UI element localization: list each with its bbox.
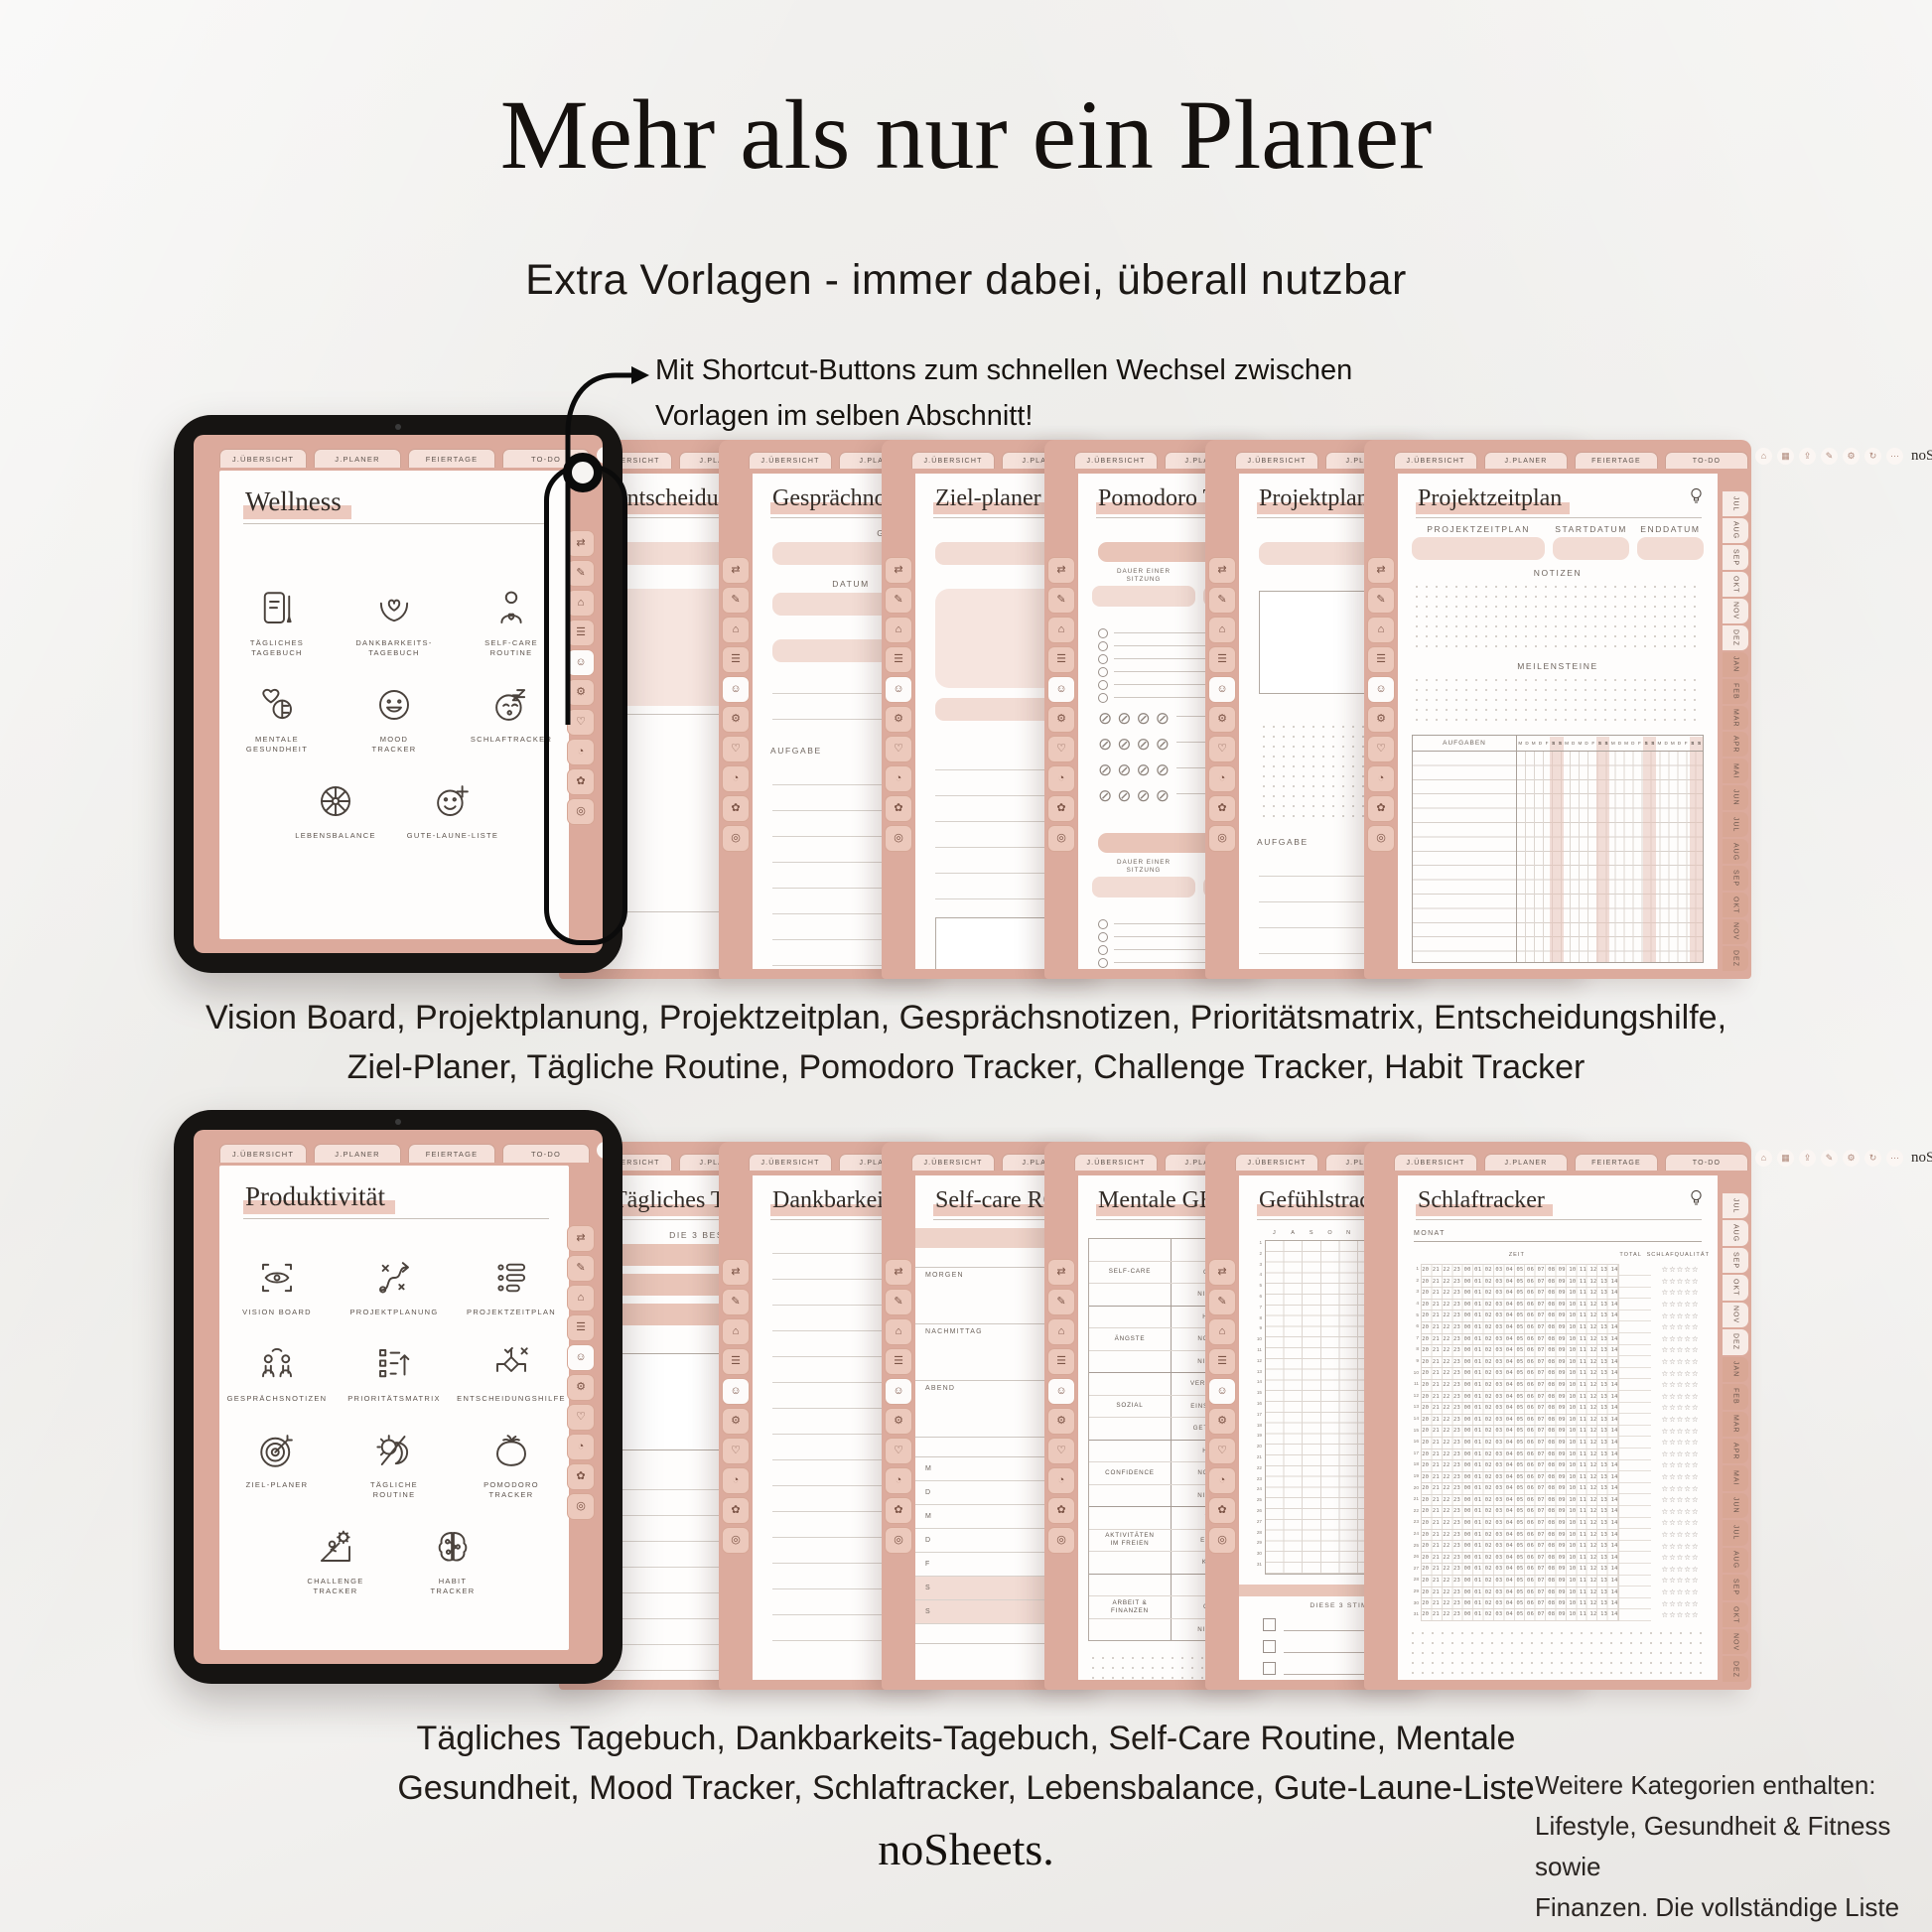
sleep-row[interactable]: 2820 21 22 23 00 01 02 03 04 05 06 07 08…	[1406, 1575, 1710, 1587]
globe-icon[interactable]: ◎	[885, 825, 912, 852]
category-item[interactable]: LEBENSBALANCE	[277, 780, 394, 841]
sleep-row[interactable]: 1520 21 22 23 00 01 02 03 04 05 06 07 08…	[1406, 1425, 1710, 1437]
heart-icon[interactable]: ♡	[722, 736, 750, 762]
category-item[interactable]: MENTALE GESUNDHEIT	[219, 684, 336, 755]
sleep-hour-cells[interactable]: 20 21 22 23 00 01 02 03 04 05 06 07 08 0…	[1421, 1310, 1619, 1321]
month-tab-mar-8[interactable]: MAR	[1723, 706, 1748, 731]
category-item[interactable]: TÄGLICHE ROUTINE	[336, 1430, 453, 1500]
gear-icon[interactable]: ⚙	[1367, 706, 1395, 733]
notes-icon[interactable]: ✎	[885, 587, 912, 614]
month-tab-dez-5[interactable]: DEZ	[1723, 625, 1748, 650]
month-tab-apr-9[interactable]: APR	[1723, 1439, 1748, 1463]
category-item[interactable]: GESPRÄCHSNOTIZEN	[219, 1343, 336, 1404]
checkbox[interactable]	[1263, 1662, 1276, 1675]
tab-feiertage[interactable]: FEIERTAGE	[1575, 452, 1658, 469]
sleep-hour-cells[interactable]: 20 21 22 23 00 01 02 03 04 05 06 07 08 0…	[1421, 1529, 1619, 1541]
sleep-quality-stars[interactable]: ☆☆☆☆☆	[1651, 1459, 1710, 1470]
notes-dots[interactable]	[1412, 582, 1704, 653]
notes-icon[interactable]: ✎	[885, 1289, 912, 1315]
sleep-quality-stars[interactable]: ☆☆☆☆☆	[1651, 1356, 1710, 1367]
leaf-icon[interactable]: ✿	[885, 795, 912, 822]
clock-icon[interactable]: ◔	[1208, 765, 1236, 792]
shuffle-icon[interactable]: ⇄	[1047, 557, 1075, 584]
month-tab-nov-16[interactable]: NOV	[1723, 1629, 1748, 1654]
sleep-quality-stars[interactable]: ☆☆☆☆☆	[1651, 1333, 1710, 1344]
leaf-icon[interactable]: ✿	[1208, 1497, 1236, 1524]
month-tab-jan-6[interactable]: JAN	[1723, 652, 1748, 677]
month-tab-mai-10[interactable]: MAI	[1723, 1465, 1748, 1490]
month-tab-aug-1[interactable]: AUG	[1723, 1220, 1748, 1245]
tab-feiertage[interactable]: FEIERTAGE	[408, 1144, 495, 1163]
gear-icon[interactable]: ⚙	[1047, 1408, 1075, 1435]
sleep-hour-cells[interactable]: 20 21 22 23 00 01 02 03 04 05 06 07 08 0…	[1421, 1425, 1619, 1437]
sleep-quality-stars[interactable]: ☆☆☆☆☆	[1651, 1311, 1710, 1321]
sleep-row[interactable]: 1220 21 22 23 00 01 02 03 04 05 06 07 08…	[1406, 1391, 1710, 1403]
heart-icon[interactable]: ♡	[1047, 1438, 1075, 1464]
leaf-icon[interactable]: ✿	[885, 1497, 912, 1524]
sleep-quality-stars[interactable]: ☆☆☆☆☆	[1651, 1494, 1710, 1505]
sleep-hour-cells[interactable]: 20 21 22 23 00 01 02 03 04 05 06 07 08 0…	[1421, 1391, 1619, 1403]
globe-icon[interactable]: ◎	[885, 1527, 912, 1554]
sleep-quality-stars[interactable]: ☆☆☆☆☆	[1651, 1587, 1710, 1597]
globe-icon[interactable]: ◎	[722, 825, 750, 852]
shuffle-icon[interactable]: ⇄	[1047, 1259, 1075, 1286]
input-field[interactable]	[1092, 586, 1195, 607]
sleep-hour-cells[interactable]: 20 21 22 23 00 01 02 03 04 05 06 07 08 0…	[1421, 1344, 1619, 1356]
clock-icon[interactable]: ◔	[722, 1467, 750, 1494]
category-item[interactable]: VISION BOARD	[219, 1257, 336, 1317]
sleep-quality-stars[interactable]: ☆☆☆☆☆	[1651, 1391, 1710, 1402]
sleep-quality-stars[interactable]: ☆☆☆☆☆	[1651, 1564, 1710, 1575]
month-tab-nov-4[interactable]: NOV	[1723, 1303, 1748, 1327]
category-item[interactable]: PROJEKTZEITPLAN	[453, 1257, 569, 1317]
sleep-quality-stars[interactable]: ☆☆☆☆☆	[1651, 1437, 1710, 1448]
tab-j-bersicht[interactable]: J.ÜBERSICHT	[1394, 1154, 1477, 1171]
sleep-row[interactable]: 1120 21 22 23 00 01 02 03 04 05 06 07 08…	[1406, 1379, 1710, 1391]
globe-icon[interactable]: ◎	[1367, 825, 1395, 852]
tab-j-bersicht[interactable]: J.ÜBERSICHT	[1235, 452, 1318, 469]
mood-icon[interactable]: ☺	[1047, 676, 1075, 703]
sleep-row[interactable]: 520 21 22 23 00 01 02 03 04 05 06 07 08 …	[1406, 1310, 1710, 1321]
sleep-hour-cells[interactable]: 20 21 22 23 00 01 02 03 04 05 06 07 08 0…	[1421, 1552, 1619, 1564]
mood-icon[interactable]: ☺	[1208, 676, 1236, 703]
sleep-quality-stars[interactable]: ☆☆☆☆☆	[1651, 1276, 1710, 1287]
tab-to-do[interactable]: TO-DO	[1665, 452, 1748, 469]
home-icon[interactable]: ⌂	[567, 1285, 595, 1311]
tab-j-bersicht[interactable]: J.ÜBERSICHT	[219, 449, 307, 468]
sleep-quality-stars[interactable]: ☆☆☆☆☆	[1651, 1321, 1710, 1332]
sleep-hour-cells[interactable]: 20 21 22 23 00 01 02 03 04 05 06 07 08 0…	[1421, 1333, 1619, 1345]
gear-icon[interactable]: ⚙	[1208, 1408, 1236, 1435]
sleep-quality-stars[interactable]: ☆☆☆☆☆	[1651, 1517, 1710, 1528]
clock-icon[interactable]: ◔	[567, 1434, 595, 1460]
clock-icon[interactable]: ◔	[885, 1467, 912, 1494]
home-icon[interactable]: ⌂	[722, 1318, 750, 1345]
sleep-row[interactable]: 2020 21 22 23 00 01 02 03 04 05 06 07 08…	[1406, 1482, 1710, 1494]
list-icon[interactable]: ☰	[1208, 646, 1236, 673]
sleep-quality-stars[interactable]: ☆☆☆☆☆	[1651, 1379, 1710, 1390]
category-item[interactable]: HABIT TRACKER	[394, 1526, 511, 1596]
checkbox[interactable]	[1263, 1640, 1276, 1653]
home-icon[interactable]: ⌂	[885, 617, 912, 643]
gear-icon[interactable]: ⚙	[722, 1408, 750, 1435]
gear-icon[interactable]: ⚙	[722, 706, 750, 733]
notes-icon[interactable]: ✎	[1367, 587, 1395, 614]
gear-icon[interactable]: ⚙	[1208, 706, 1236, 733]
month-tab-sep-14[interactable]: SEP	[1723, 866, 1748, 891]
shuffle-icon[interactable]: ⇄	[567, 1225, 595, 1252]
pen-icon[interactable]: ✎	[1821, 1150, 1838, 1167]
sleep-row[interactable]: 120 21 22 23 00 01 02 03 04 05 06 07 08 …	[1406, 1264, 1710, 1276]
sleep-row[interactable]: 2320 21 22 23 00 01 02 03 04 05 06 07 08…	[1406, 1517, 1710, 1529]
month-tab-okt-15[interactable]: OKT	[1723, 893, 1748, 917]
tab-j-bersicht[interactable]: J.ÜBERSICHT	[1074, 452, 1158, 469]
clock-icon[interactable]: ◔	[722, 765, 750, 792]
month-tab-nov-16[interactable]: NOV	[1723, 919, 1748, 944]
sleep-quality-stars[interactable]: ☆☆☆☆☆	[1651, 1471, 1710, 1482]
sleep-hour-cells[interactable]: 20 21 22 23 00 01 02 03 04 05 06 07 08 0…	[1421, 1276, 1619, 1288]
sleep-hour-cells[interactable]: 20 21 22 23 00 01 02 03 04 05 06 07 08 0…	[1421, 1367, 1619, 1379]
sleep-row[interactable]: 2720 21 22 23 00 01 02 03 04 05 06 07 08…	[1406, 1563, 1710, 1575]
home-icon[interactable]: ⌂	[1208, 1318, 1236, 1345]
shuffle-icon[interactable]: ⇄	[1367, 557, 1395, 584]
gear-icon[interactable]: ⚙	[885, 706, 912, 733]
sleep-hour-cells[interactable]: 20 21 22 23 00 01 02 03 04 05 06 07 08 0…	[1421, 1356, 1619, 1368]
sleep-hour-cells[interactable]: 20 21 22 23 00 01 02 03 04 05 06 07 08 0…	[1421, 1575, 1619, 1587]
category-item[interactable]: PROJEKTPLANUNG	[336, 1257, 453, 1317]
sleep-row[interactable]: 320 21 22 23 00 01 02 03 04 05 06 07 08 …	[1406, 1287, 1710, 1299]
leaf-icon[interactable]: ✿	[722, 795, 750, 822]
month-tab-sep-2[interactable]: SEP	[1723, 545, 1748, 570]
month-tab-okt-15[interactable]: OKT	[1723, 1602, 1748, 1627]
input-field[interactable]	[1092, 877, 1195, 897]
month-tab-jul-12[interactable]: JUL	[1723, 1520, 1748, 1545]
clock-icon[interactable]: ◔	[1047, 1467, 1075, 1494]
category-item[interactable]: MOOD TRACKER	[336, 684, 453, 755]
leaf-icon[interactable]: ✿	[722, 1497, 750, 1524]
month-tab-dez-17[interactable]: DEZ	[1723, 1656, 1748, 1681]
sleep-hour-cells[interactable]: 20 21 22 23 00 01 02 03 04 05 06 07 08 0…	[1421, 1494, 1619, 1506]
sleep-row[interactable]: 2120 21 22 23 00 01 02 03 04 05 06 07 08…	[1406, 1494, 1710, 1506]
globe-icon[interactable]: ◎	[1208, 1527, 1236, 1554]
mood-icon[interactable]: ☺	[722, 1378, 750, 1405]
month-tab-feb-7[interactable]: FEB	[1723, 1384, 1748, 1409]
sleep-quality-stars[interactable]: ☆☆☆☆☆	[1651, 1552, 1710, 1563]
sleep-hour-cells[interactable]: 20 21 22 23 00 01 02 03 04 05 06 07 08 0…	[1421, 1414, 1619, 1426]
category-item[interactable]: DANKBARKEITS- TAGEBUCH	[336, 588, 453, 658]
month-tab-okt-3[interactable]: OKT	[1723, 1275, 1748, 1300]
heart-icon[interactable]: ♡	[1208, 1438, 1236, 1464]
share-icon[interactable]: ⇪	[1799, 1150, 1816, 1167]
grid-icon[interactable]: ▦	[1777, 448, 1794, 465]
sleep-quality-stars[interactable]: ☆☆☆☆☆	[1651, 1402, 1710, 1413]
month-tab-aug-13[interactable]: AUG	[1723, 1548, 1748, 1573]
month-tab-jan-6[interactable]: JAN	[1723, 1357, 1748, 1382]
month-tab-sep-2[interactable]: SEP	[1723, 1248, 1748, 1273]
tab-j-bersicht[interactable]: J.ÜBERSICHT	[1074, 1154, 1158, 1171]
globe-icon[interactable]: ◎	[567, 1493, 595, 1520]
share-icon[interactable]: ⇪	[1799, 448, 1816, 465]
leaf-icon[interactable]: ✿	[567, 1463, 595, 1490]
notes-icon[interactable]: ✎	[567, 1255, 595, 1282]
tab-j-bersicht[interactable]: J.ÜBERSICHT	[749, 452, 832, 469]
notes-icon[interactable]: ✎	[722, 1289, 750, 1315]
home-icon[interactable]: ⌂	[1367, 617, 1395, 643]
sleep-row[interactable]: 820 21 22 23 00 01 02 03 04 05 06 07 08 …	[1406, 1344, 1710, 1356]
sleep-row[interactable]: 2420 21 22 23 00 01 02 03 04 05 06 07 08…	[1406, 1529, 1710, 1541]
sleep-hour-cells[interactable]: 20 21 22 23 00 01 02 03 04 05 06 07 08 0…	[1421, 1402, 1619, 1414]
tab-j-planer[interactable]: J.PLANER	[314, 1144, 401, 1163]
sleep-quality-stars[interactable]: ☆☆☆☆☆	[1651, 1264, 1710, 1275]
home-icon[interactable]: ⌂	[885, 1318, 912, 1345]
sleep-hour-cells[interactable]: 20 21 22 23 00 01 02 03 04 05 06 07 08 0…	[1421, 1597, 1619, 1609]
home-icon[interactable]: ⌂	[597, 1142, 603, 1159]
list-icon[interactable]: ☰	[885, 646, 912, 673]
tab-to-do[interactable]: TO-DO	[502, 1144, 590, 1163]
heart-icon[interactable]: ♡	[885, 1438, 912, 1464]
mood-icon[interactable]: ☺	[1047, 1378, 1075, 1405]
sleep-row[interactable]: 420 21 22 23 00 01 02 03 04 05 06 07 08 …	[1406, 1299, 1710, 1311]
list-icon[interactable]: ☰	[1047, 1348, 1075, 1375]
sleep-hour-cells[interactable]: 20 21 22 23 00 01 02 03 04 05 06 07 08 0…	[1421, 1449, 1619, 1460]
sleep-row[interactable]: 1820 21 22 23 00 01 02 03 04 05 06 07 08…	[1406, 1459, 1710, 1471]
notes-icon[interactable]: ✎	[1047, 1289, 1075, 1315]
globe-icon[interactable]: ◎	[1208, 825, 1236, 852]
home-icon[interactable]: ⌂	[1047, 617, 1075, 643]
sleep-quality-stars[interactable]: ☆☆☆☆☆	[1651, 1575, 1710, 1586]
sleep-hour-cells[interactable]: 20 21 22 23 00 01 02 03 04 05 06 07 08 0…	[1421, 1563, 1619, 1575]
month-tab-jul-0[interactable]: JUL	[1723, 491, 1748, 516]
month-tab-nov-4[interactable]: NOV	[1723, 599, 1748, 623]
clock-icon[interactable]: ◔	[1208, 1467, 1236, 1494]
sleep-quality-stars[interactable]: ☆☆☆☆☆	[1651, 1609, 1710, 1620]
sleep-hour-cells[interactable]: 20 21 22 23 00 01 02 03 04 05 06 07 08 0…	[1421, 1321, 1619, 1333]
sleep-row[interactable]: 2520 21 22 23 00 01 02 03 04 05 06 07 08…	[1406, 1540, 1710, 1552]
sleep-hour-cells[interactable]: 20 21 22 23 00 01 02 03 04 05 06 07 08 0…	[1421, 1459, 1619, 1471]
heart-icon[interactable]: ♡	[1047, 736, 1075, 762]
sleep-row[interactable]: 920 21 22 23 00 01 02 03 04 05 06 07 08 …	[1406, 1356, 1710, 1368]
sleep-row[interactable]: 2620 21 22 23 00 01 02 03 04 05 06 07 08…	[1406, 1552, 1710, 1564]
clock-icon[interactable]: ◔	[1367, 765, 1395, 792]
mood-icon[interactable]: ☺	[722, 676, 750, 703]
tab-feiertage[interactable]: FEIERTAGE	[408, 449, 495, 468]
idea-bulb-icon[interactable]	[1689, 487, 1704, 510]
checkbox[interactable]	[1263, 1618, 1276, 1631]
sleep-hour-cells[interactable]: 20 21 22 23 00 01 02 03 04 05 06 07 08 0…	[1421, 1471, 1619, 1483]
sleep-quality-stars[interactable]: ☆☆☆☆☆	[1651, 1483, 1710, 1494]
tab-to-do[interactable]: TO-DO	[1665, 1154, 1748, 1171]
category-item[interactable]: GUTE-LAUNE-LISTE	[394, 780, 511, 841]
sleep-row[interactable]: 2920 21 22 23 00 01 02 03 04 05 06 07 08…	[1406, 1587, 1710, 1598]
month-tab-mar-8[interactable]: MAR	[1723, 1412, 1748, 1437]
gear-icon[interactable]: ⚙	[1843, 1150, 1860, 1167]
heart-icon[interactable]: ♡	[722, 1438, 750, 1464]
sleep-row[interactable]: 620 21 22 23 00 01 02 03 04 05 06 07 08 …	[1406, 1321, 1710, 1333]
clock-icon[interactable]: ◔	[1047, 765, 1075, 792]
notes-icon[interactable]: ✎	[722, 587, 750, 614]
sleep-row[interactable]: 1420 21 22 23 00 01 02 03 04 05 06 07 08…	[1406, 1414, 1710, 1426]
tab-j-bersicht[interactable]: J.ÜBERSICHT	[219, 1144, 307, 1163]
sleep-row[interactable]: 3020 21 22 23 00 01 02 03 04 05 06 07 08…	[1406, 1597, 1710, 1609]
list-icon[interactable]: ☰	[722, 1348, 750, 1375]
sleep-hour-cells[interactable]: 20 21 22 23 00 01 02 03 04 05 06 07 08 0…	[1421, 1517, 1619, 1529]
sleep-total-cell[interactable]	[1619, 1608, 1651, 1621]
category-item[interactable]: TÄGLICHES TAGEBUCH	[219, 588, 336, 658]
sleep-hour-cells[interactable]: 20 21 22 23 00 01 02 03 04 05 06 07 08 0…	[1421, 1379, 1619, 1391]
undo-icon[interactable]: ↻	[1864, 1150, 1881, 1167]
input-field[interactable]	[1412, 537, 1545, 560]
month-tab-apr-9[interactable]: APR	[1723, 732, 1748, 757]
month-tab-feb-7[interactable]: FEB	[1723, 679, 1748, 704]
idea-bulb-icon[interactable]	[1689, 1189, 1704, 1212]
mood-icon[interactable]: ☺	[1208, 1378, 1236, 1405]
gear-icon[interactable]: ⚙	[1843, 448, 1860, 465]
sleep-row[interactable]: 1920 21 22 23 00 01 02 03 04 05 06 07 08…	[1406, 1471, 1710, 1483]
input-field[interactable]	[1637, 537, 1704, 560]
sleep-row[interactable]: 3120 21 22 23 00 01 02 03 04 05 06 07 08…	[1406, 1609, 1710, 1621]
heart-icon[interactable]: ♡	[885, 736, 912, 762]
sleep-quality-stars[interactable]: ☆☆☆☆☆	[1651, 1299, 1710, 1310]
heart-icon[interactable]: ♡	[567, 1404, 595, 1431]
sleep-hour-cells[interactable]: 20 21 22 23 00 01 02 03 04 05 06 07 08 0…	[1421, 1287, 1619, 1299]
clock-icon[interactable]: ◔	[885, 765, 912, 792]
category-item[interactable]: ENTSCHEIDUNGSHILFE	[453, 1343, 569, 1404]
grid-icon[interactable]: ▦	[1777, 1150, 1794, 1167]
sleep-row[interactable]: 1620 21 22 23 00 01 02 03 04 05 06 07 08…	[1406, 1437, 1710, 1449]
list-icon[interactable]: ☰	[1367, 646, 1395, 673]
sleep-quality-stars[interactable]: ☆☆☆☆☆	[1651, 1287, 1710, 1298]
month-tab-jul-12[interactable]: JUL	[1723, 812, 1748, 837]
heart-icon[interactable]: ♡	[1367, 736, 1395, 762]
sleep-row[interactable]: 1720 21 22 23 00 01 02 03 04 05 06 07 08…	[1406, 1449, 1710, 1460]
sleep-quality-stars[interactable]: ☆☆☆☆☆	[1651, 1529, 1710, 1540]
notes-icon[interactable]: ✎	[1047, 587, 1075, 614]
mood-icon[interactable]: ☺	[567, 1344, 595, 1371]
leaf-icon[interactable]: ✿	[1047, 795, 1075, 822]
globe-icon[interactable]: ◎	[1047, 825, 1075, 852]
tab-j-bersicht[interactable]: J.ÜBERSICHT	[1235, 1154, 1318, 1171]
more-icon[interactable]: ⋯	[1886, 448, 1903, 465]
pen-icon[interactable]: ✎	[1821, 448, 1838, 465]
notes-icon[interactable]: ✎	[1208, 587, 1236, 614]
sleep-row[interactable]: 220 21 22 23 00 01 02 03 04 05 06 07 08 …	[1406, 1276, 1710, 1288]
month-tab-okt-3[interactable]: OKT	[1723, 572, 1748, 597]
category-item[interactable]: ZIEL-PLANER	[219, 1430, 336, 1500]
notes-dots[interactable]	[1408, 1628, 1708, 1680]
tab-j-bersicht[interactable]: J.ÜBERSICHT	[749, 1154, 832, 1171]
list-icon[interactable]: ☰	[567, 1314, 595, 1341]
tab-j-planer[interactable]: J.PLANER	[314, 449, 401, 468]
leaf-icon[interactable]: ✿	[1367, 795, 1395, 822]
list-icon[interactable]: ☰	[1208, 1348, 1236, 1375]
sleep-hour-cells[interactable]: 20 21 22 23 00 01 02 03 04 05 06 07 08 0…	[1421, 1608, 1619, 1621]
milestones-dots[interactable]	[1412, 675, 1704, 729]
shuffle-icon[interactable]: ⇄	[885, 557, 912, 584]
shuffle-icon[interactable]: ⇄	[722, 1259, 750, 1286]
home-icon[interactable]: ⌂	[1047, 1318, 1075, 1345]
shuffle-icon[interactable]: ⇄	[1208, 557, 1236, 584]
sleep-quality-stars[interactable]: ☆☆☆☆☆	[1651, 1598, 1710, 1609]
gear-icon[interactable]: ⚙	[885, 1408, 912, 1435]
sleep-quality-stars[interactable]: ☆☆☆☆☆	[1651, 1449, 1710, 1459]
gantt-table[interactable]: AUFGABEN MDMDFSSMDMDFSSMDMDFSSMDMDFSS	[1412, 735, 1704, 963]
month-tab-sep-14[interactable]: SEP	[1723, 1575, 1748, 1599]
month-tab-aug-13[interactable]: AUG	[1723, 839, 1748, 864]
tab-j-bersicht[interactable]: J.ÜBERSICHT	[911, 1154, 995, 1171]
mood-icon[interactable]: ☺	[885, 1378, 912, 1405]
shuffle-icon[interactable]: ⇄	[722, 557, 750, 584]
sleep-hour-cells[interactable]: 20 21 22 23 00 01 02 03 04 05 06 07 08 0…	[1421, 1540, 1619, 1552]
home-icon[interactable]: ⌂	[1208, 617, 1236, 643]
globe-icon[interactable]: ◎	[1047, 1527, 1075, 1554]
month-tab-dez-5[interactable]: DEZ	[1723, 1329, 1748, 1354]
gear-icon[interactable]: ⚙	[1047, 706, 1075, 733]
sleep-hour-cells[interactable]: 20 21 22 23 00 01 02 03 04 05 06 07 08 0…	[1421, 1587, 1619, 1598]
sleep-hour-cells[interactable]: 20 21 22 23 00 01 02 03 04 05 06 07 08 0…	[1421, 1482, 1619, 1494]
category-item[interactable]: PRIORITÄTSMATRIX	[336, 1343, 453, 1404]
list-icon[interactable]: ☰	[1047, 646, 1075, 673]
category-item[interactable]: CHALLENGE TRACKER	[277, 1526, 394, 1596]
mood-icon[interactable]: ☺	[885, 676, 912, 703]
sleep-quality-stars[interactable]: ☆☆☆☆☆	[1651, 1344, 1710, 1355]
mood-icon[interactable]: ☺	[1367, 676, 1395, 703]
sleep-row[interactable]: 2220 21 22 23 00 01 02 03 04 05 06 07 08…	[1406, 1505, 1710, 1517]
input-field[interactable]	[1553, 537, 1629, 560]
sleep-day-number: 8	[1406, 1347, 1421, 1352]
sleep-hour-cells[interactable]: 20 21 22 23 00 01 02 03 04 05 06 07 08 0…	[1421, 1299, 1619, 1311]
tab-j-bersicht[interactable]: J.ÜBERSICHT	[1394, 452, 1477, 469]
home-icon[interactable]: ⌂	[722, 617, 750, 643]
month-tab-jun-11[interactable]: JUN	[1723, 1493, 1748, 1518]
shuffle-icon[interactable]: ⇄	[1208, 1259, 1236, 1286]
category-item[interactable]: POMODORO TRACKER	[453, 1430, 569, 1500]
gear-icon[interactable]: ⚙	[567, 1374, 595, 1401]
sleep-hour-cells[interactable]: 20 21 22 23 00 01 02 03 04 05 06 07 08 0…	[1421, 1264, 1619, 1276]
tab-j-bersicht[interactable]: J.ÜBERSICHT	[911, 452, 995, 469]
sleep-quality-stars[interactable]: ☆☆☆☆☆	[1651, 1414, 1710, 1425]
undo-icon[interactable]: ↻	[1864, 448, 1881, 465]
home-icon[interactable]: ⌂	[1755, 448, 1772, 465]
tab-j-planer[interactable]: J.PLANER	[1484, 1154, 1568, 1171]
tab-j-planer[interactable]: J.PLANER	[1484, 452, 1568, 469]
sleep-quality-stars[interactable]: ☆☆☆☆☆	[1651, 1506, 1710, 1517]
heart-icon[interactable]: ♡	[1208, 736, 1236, 762]
month-tab-dez-17[interactable]: DEZ	[1723, 946, 1748, 971]
sleep-quality-stars[interactable]: ☆☆☆☆☆	[1651, 1541, 1710, 1552]
sleep-row[interactable]: 720 21 22 23 00 01 02 03 04 05 06 07 08 …	[1406, 1333, 1710, 1345]
leaf-icon[interactable]: ✿	[1208, 795, 1236, 822]
sleep-quality-stars[interactable]: ☆☆☆☆☆	[1651, 1426, 1710, 1437]
sleep-hour-cells[interactable]: 20 21 22 23 00 01 02 03 04 05 06 07 08 0…	[1421, 1505, 1619, 1517]
sleep-row[interactable]: 1320 21 22 23 00 01 02 03 04 05 06 07 08…	[1406, 1402, 1710, 1414]
month-tab-mai-10[interactable]: MAI	[1723, 759, 1748, 783]
month-tab-aug-1[interactable]: AUG	[1723, 518, 1748, 543]
more-icon[interactable]: ⋯	[1886, 1150, 1903, 1167]
list-icon[interactable]: ☰	[722, 646, 750, 673]
list-icon[interactable]: ☰	[885, 1348, 912, 1375]
sleep-quality-stars[interactable]: ☆☆☆☆☆	[1651, 1368, 1710, 1379]
month-tab-jul-0[interactable]: JUL	[1723, 1193, 1748, 1218]
home-icon[interactable]: ⌂	[1755, 1150, 1772, 1167]
leaf-icon[interactable]: ✿	[1047, 1497, 1075, 1524]
sleep-hour-cells[interactable]: 20 21 22 23 00 01 02 03 04 05 06 07 08 0…	[1421, 1437, 1619, 1449]
month-tab-jun-11[interactable]: JUN	[1723, 785, 1748, 810]
sleep-row[interactable]: 1020 21 22 23 00 01 02 03 04 05 06 07 08…	[1406, 1367, 1710, 1379]
globe-icon[interactable]: ◎	[722, 1527, 750, 1554]
shuffle-icon[interactable]: ⇄	[885, 1259, 912, 1286]
tab-feiertage[interactable]: FEIERTAGE	[1575, 1154, 1658, 1171]
notes-icon[interactable]: ✎	[1208, 1289, 1236, 1315]
